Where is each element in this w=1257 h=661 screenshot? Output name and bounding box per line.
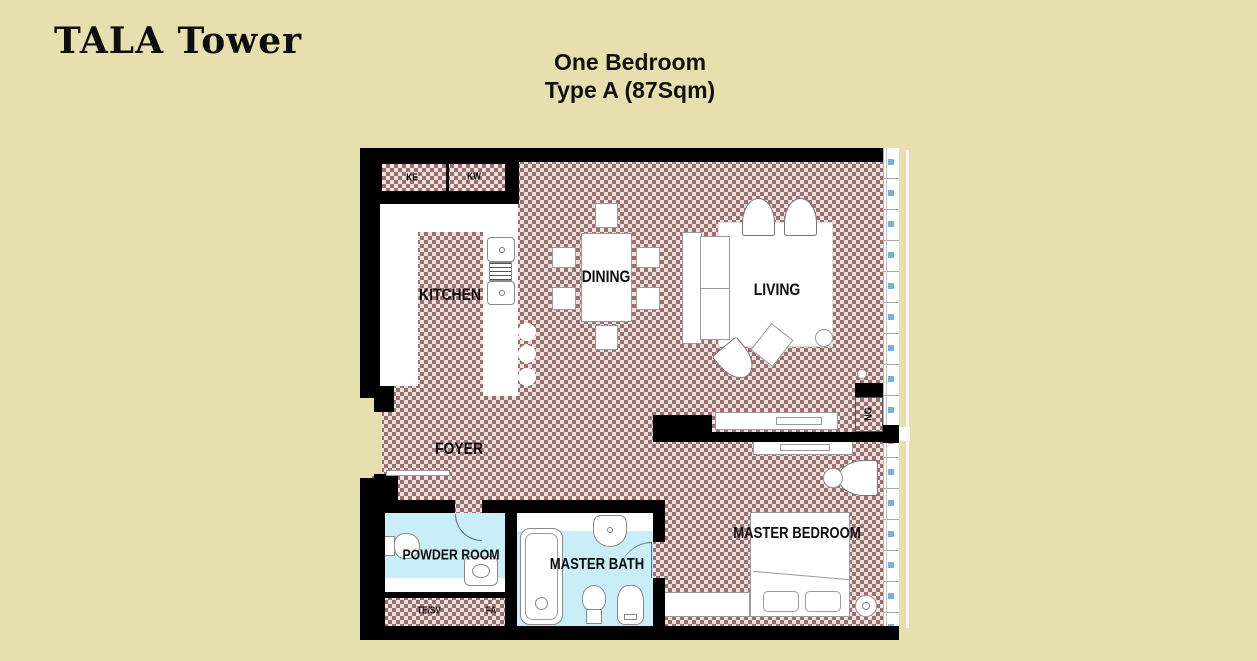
strip-divider-wall: [385, 592, 505, 598]
sofa-seat: [700, 236, 730, 340]
ottoman: [823, 468, 843, 488]
room-label-foyer: FOYER: [435, 439, 483, 459]
room-label-kitchen: KITCHEN: [419, 285, 481, 305]
annotation-te-sv: TE/SV: [417, 606, 441, 617]
bedroom-dresser: [663, 592, 750, 617]
appliance-strip: [380, 162, 510, 193]
dining-chair: [636, 247, 660, 268]
bedside-lamp-icon: [862, 602, 870, 610]
window-mullion-line: [886, 148, 887, 626]
dining-chair: [636, 287, 660, 310]
console-drawer: [776, 417, 822, 425]
page: TALA Tower One Bedroom Type A (87Sqm) KE…: [0, 0, 1257, 661]
wall-bath-right-lower: [653, 578, 665, 628]
brand-title: TALA Tower: [54, 20, 302, 62]
wall-bath-divider: [505, 500, 517, 628]
window-wall-break: [883, 425, 899, 443]
room-label-powder-room: POWDER ROOM: [402, 547, 499, 564]
room-label-master-bedroom: MASTER BEDROOM: [733, 525, 861, 543]
bathtub: [520, 528, 563, 625]
tv-console: [715, 412, 838, 430]
bedside-table: [855, 595, 877, 617]
small-fixture: [857, 369, 867, 379]
wall-left-upper: [360, 148, 380, 398]
bar-stool: [518, 323, 536, 341]
wall-under-appliances: [378, 193, 518, 204]
kitchen-counter-left: [378, 204, 418, 386]
toilet-bowl: [582, 585, 606, 611]
room-label-dining: DINING: [582, 267, 631, 287]
plan-title: One Bedroom Type A (87Sqm): [440, 48, 820, 104]
pillow: [805, 591, 841, 612]
window-outer-line: [906, 150, 909, 628]
sink-drain-icon: [499, 290, 505, 296]
wall-bath-top-left: [380, 500, 455, 513]
dining-chair: [552, 287, 576, 310]
entry-door-leaf: [386, 470, 450, 476]
window-strip: [883, 148, 899, 626]
wall-bath-right-upper: [653, 500, 665, 542]
floor-plan: KE KW DINING LIVING FOYER: [360, 148, 912, 640]
wall-bottom: [360, 626, 899, 640]
bar-stool: [518, 368, 536, 386]
kitchen-sink-1: [487, 237, 515, 262]
plan-title-line1: One Bedroom: [440, 48, 820, 76]
annotation-kw: KW: [467, 172, 481, 183]
appliance-strip-divider: [446, 162, 449, 193]
wall-top: [360, 148, 886, 162]
dining-chair: [552, 247, 576, 268]
plan-title-line2: Type A (87Sqm): [440, 76, 820, 104]
bed-fold-line: [753, 571, 849, 580]
kitchen-sink-2: [487, 281, 515, 305]
dining-chair: [595, 203, 618, 228]
kitchen-stove: [489, 262, 512, 281]
sofa-back: [682, 232, 702, 344]
bidet: [617, 585, 644, 625]
annotation-ke: KE: [406, 173, 417, 184]
dining-chair: [595, 325, 618, 350]
side-table: [815, 329, 833, 347]
bar-stool: [518, 345, 536, 363]
room-label-living: LIVING: [754, 280, 800, 300]
toilet-base: [586, 609, 602, 624]
wardrobe: [753, 440, 853, 455]
sink-basin-icon: [472, 564, 490, 578]
bidet-detail: [624, 614, 637, 620]
sink-drain-icon: [607, 527, 613, 533]
bathtub-drain-icon: [535, 597, 548, 610]
wardrobe-door: [780, 444, 830, 451]
pillow: [763, 591, 799, 612]
room-label-master-bath: MASTER BATH: [550, 556, 645, 574]
wall-living-ng: [855, 383, 883, 397]
wall-bedroom-corner: [653, 415, 712, 442]
bath-sink: [593, 515, 627, 547]
annotation-fa: FA: [486, 606, 496, 617]
sink-drain-icon: [499, 247, 505, 253]
annotation-ng: NG: [864, 407, 875, 421]
sofa-cushion-line: [701, 288, 729, 289]
